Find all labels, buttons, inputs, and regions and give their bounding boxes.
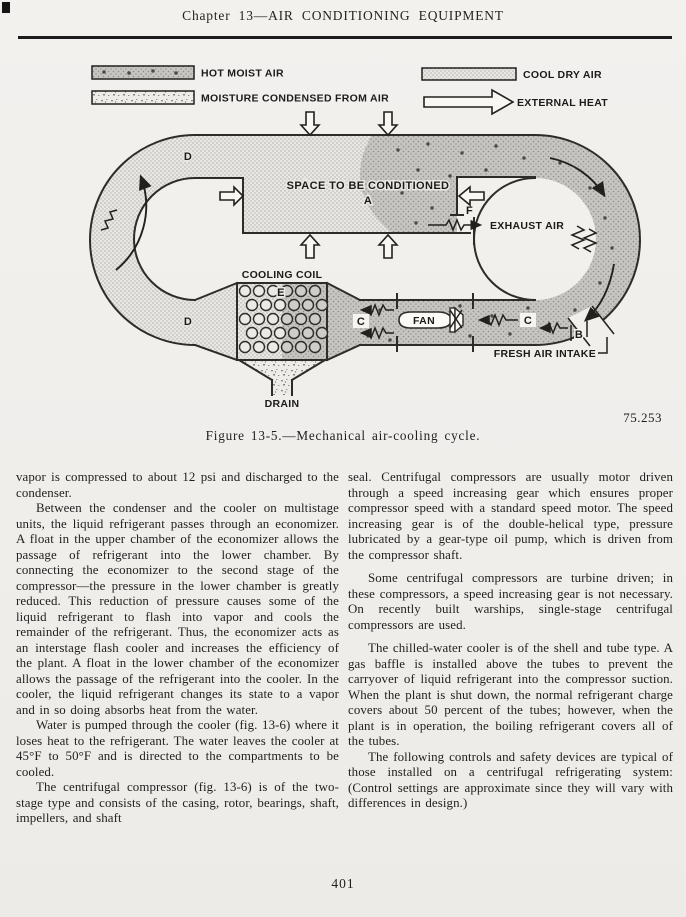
legend-hot-moist-air-swatch bbox=[92, 66, 194, 79]
heat-arrow-left-icon bbox=[220, 187, 243, 205]
legend: HOT MOIST AIR MOISTURE CONDENSED FROM AI… bbox=[92, 66, 608, 114]
exhaust-air-label: EXHAUST AIR bbox=[490, 220, 564, 232]
wall-heat-zigzag-icon bbox=[584, 229, 596, 252]
space-label: SPACE TO BE CONDITIONED bbox=[287, 180, 450, 192]
legend-moisture-condensed-label: MOISTURE CONDENSED FROM AIR bbox=[201, 93, 389, 105]
page-number: 401 bbox=[0, 876, 686, 892]
legend-cool-dry-air-swatch bbox=[422, 68, 516, 80]
paragraph: vapor is compressed to about 12 psi and … bbox=[16, 470, 339, 501]
point-a-label: A bbox=[364, 195, 372, 207]
fresh-air-intake-label: FRESH AIR INTAKE bbox=[494, 348, 596, 360]
paragraph: Some centrifugal compressors are turbine… bbox=[348, 571, 673, 633]
point-f-label: F bbox=[466, 205, 473, 217]
fan-label: FAN bbox=[413, 315, 435, 327]
point-d-label-bottom: D bbox=[184, 316, 192, 328]
point-c-label-left: C bbox=[357, 316, 365, 328]
figure-ref-number: 75.253 bbox=[623, 410, 662, 426]
legend-external-heat-label: EXTERNAL HEAT bbox=[517, 97, 608, 109]
legend-moisture-condensed-swatch bbox=[92, 91, 194, 104]
manual-page: Chapter 13—AIR CONDITIONING EQUIPMENT bbox=[0, 0, 686, 917]
legend-hot-moist-air-label: HOT MOIST AIR bbox=[201, 68, 284, 80]
heat-arrow-bottom-right-icon bbox=[379, 235, 397, 258]
cooling-coil-label: COOLING COIL bbox=[242, 269, 323, 281]
paragraph: seal. Centrifugal compressors are usuall… bbox=[348, 470, 673, 563]
legend-cool-dry-air-label: COOL DRY AIR bbox=[523, 69, 602, 81]
heat-arrow-pocket-icon bbox=[459, 187, 484, 205]
figure-caption: Figure 13-5.—Mechanical air-cooling cycl… bbox=[0, 428, 686, 444]
wall-heat-zigzag-icon bbox=[572, 226, 584, 249]
figure-13-5-diagram: HOT MOIST AIR MOISTURE CONDENSED FROM AI… bbox=[0, 58, 686, 418]
point-b-label: B bbox=[575, 329, 583, 341]
paragraph: The following controls and safety device… bbox=[348, 750, 673, 812]
paragraph: Water is pumped through the cooler (fig.… bbox=[16, 718, 339, 780]
drain-label: DRAIN bbox=[265, 398, 300, 410]
paragraph: The chilled-water cooler is of the shell… bbox=[348, 641, 673, 750]
paragraph: Between the condenser and the cooler on … bbox=[16, 501, 339, 718]
body-column-left: vapor is compressed to about 12 psi and … bbox=[16, 470, 339, 827]
point-e-label: E bbox=[277, 287, 285, 299]
paragraph: The centrifugal compressor (fig. 13-6) i… bbox=[16, 780, 339, 827]
heat-arrow-top-right-icon bbox=[379, 112, 397, 135]
chapter-header: Chapter 13—AIR CONDITIONING EQUIPMENT bbox=[0, 8, 686, 24]
legend-external-heat-arrow-icon bbox=[424, 90, 513, 114]
point-c-label-right: C bbox=[524, 315, 532, 327]
body-column-right: seal. Centrifugal compressors are usuall… bbox=[348, 470, 673, 812]
point-d-label-top: D bbox=[184, 151, 192, 163]
heat-arrow-bottom-left-icon bbox=[301, 235, 319, 258]
heat-arrow-top-left-icon bbox=[301, 112, 319, 135]
header-rule bbox=[18, 36, 672, 39]
